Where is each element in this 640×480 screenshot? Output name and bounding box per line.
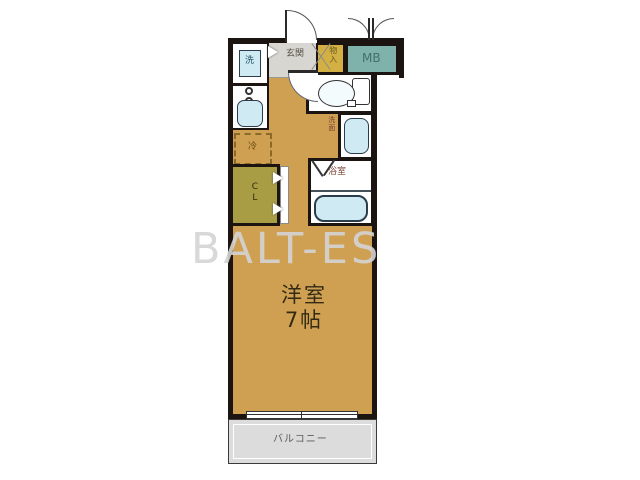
meter-box-label: MB <box>362 52 381 65</box>
mb-door-arc-left-icon <box>348 18 370 40</box>
toilet-handle-icon <box>347 100 356 107</box>
balcony-window-rail <box>246 414 358 415</box>
wall-right-top <box>399 38 404 78</box>
bathroom-divider <box>311 190 371 192</box>
balcony-window-tick <box>301 411 302 419</box>
closet-door-arrow-icon <box>273 203 283 215</box>
bathroom-label: 浴室 <box>328 168 346 178</box>
mb-door-arc-right-icon <box>372 18 394 40</box>
bathtub-icon <box>314 195 368 222</box>
stove-burner-icon <box>245 87 253 95</box>
balcony-label: バルコニー <box>273 434 328 445</box>
closet-label: CL <box>249 182 259 204</box>
storage-label: 物入 <box>328 46 337 64</box>
main-room-name: 洋室 <box>262 283 346 308</box>
hall-door-leaf-icon <box>288 70 318 73</box>
balcony-window <box>246 411 358 419</box>
kitchen-sink-icon <box>237 100 263 127</box>
entrance-label: 玄関 <box>286 50 304 60</box>
closet-door-arrow-icon <box>273 172 283 184</box>
entrance-door-arc-icon <box>287 10 317 40</box>
entrance-step-arrow-icon <box>268 46 278 58</box>
main-room-size: 7帖 <box>262 308 346 333</box>
watermark-text: BALT-ES <box>191 224 381 274</box>
floorplan: 玄関 物入 MB 洗 冷 CL WC 洗面 浴室 <box>0 0 640 480</box>
mb-door-leaf-icon <box>372 18 374 40</box>
washroom-label: 洗面 <box>327 116 335 132</box>
washbasin-icon <box>344 118 369 154</box>
laundry-label: 洗 <box>245 57 254 67</box>
main-room-label: 洋室 7帖 <box>262 283 346 333</box>
refrigerator-label: 冷 <box>248 143 257 153</box>
mb-door-leaf-icon <box>368 18 370 40</box>
entrance-door-leaf-icon <box>285 10 287 42</box>
